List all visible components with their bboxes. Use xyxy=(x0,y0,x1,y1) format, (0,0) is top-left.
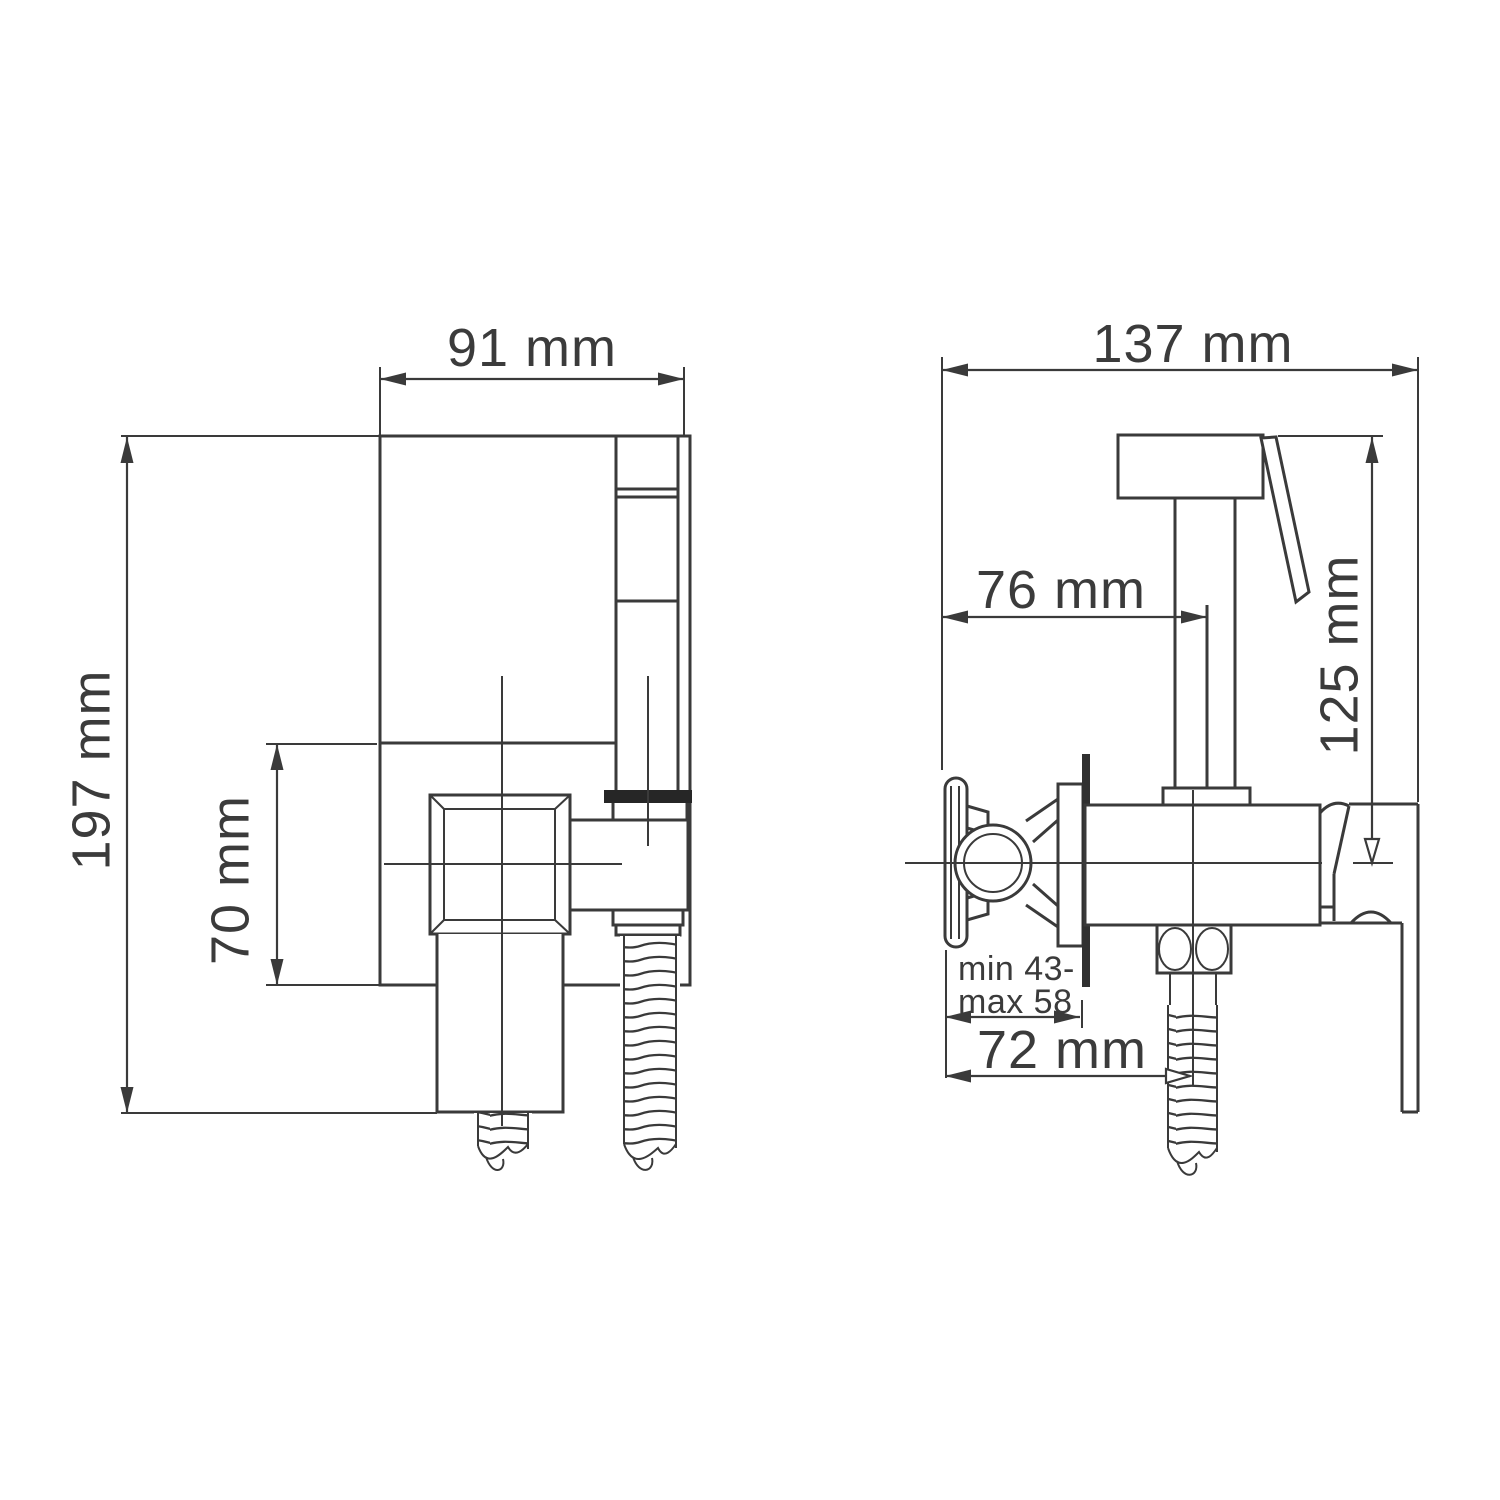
mixer-handle-side xyxy=(1320,803,1418,1112)
valve-body-side xyxy=(1085,805,1320,925)
dim-label-overall-height: 197 mm xyxy=(61,669,121,870)
wall-flange-side xyxy=(1058,784,1083,946)
dim-label-overall-depth: 137 mm xyxy=(1092,314,1293,374)
valve-column-front xyxy=(437,934,563,1112)
spray-trigger-lever xyxy=(1261,437,1309,602)
hose-nut-lower xyxy=(616,925,680,935)
dim-label-hose-offset: 72 mm xyxy=(977,1020,1147,1080)
technical-drawing-page: 197 mm 91 mm 70 mm 137 mm 76 mm 125 mm m… xyxy=(0,0,1500,1500)
dim-label-holder-offset: 76 mm xyxy=(976,560,1146,620)
shower-hose-front xyxy=(620,936,680,1170)
hose-nut-upper xyxy=(613,910,683,925)
front-view xyxy=(380,436,692,1170)
dim-label-shower-height: 125 mm xyxy=(1309,554,1369,755)
spray-head-side xyxy=(1118,435,1263,498)
holder-column-side xyxy=(1175,498,1235,788)
dim-label-plate-width: 91 mm xyxy=(447,318,617,378)
holder-pedestal xyxy=(1163,788,1250,805)
dim-label-wall-range-2: max 58 xyxy=(958,983,1073,1021)
bidet-mixer-dimension-drawing: 197 mm 91 mm 70 mm 137 mm 76 mm 125 mm m… xyxy=(0,0,1500,1500)
dim-label-valve-axis-offset: 70 mm xyxy=(200,795,260,965)
